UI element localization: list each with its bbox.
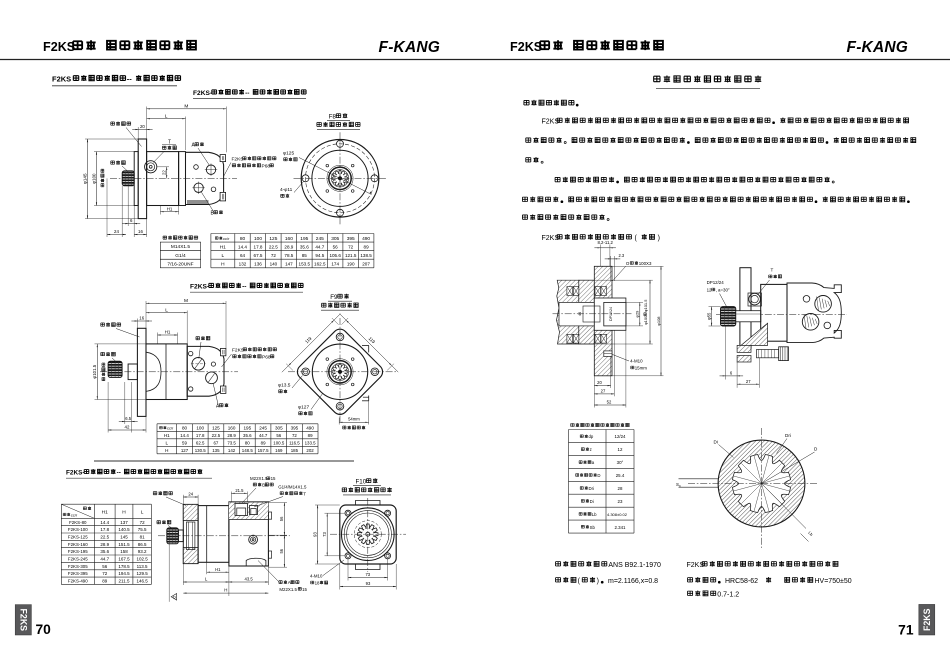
svg-text:φ100: φ100 xyxy=(643,315,648,325)
svg-text:cc/r: cc/r xyxy=(223,236,230,241)
svg-text:H: H xyxy=(165,448,168,453)
svg-text:D: D xyxy=(597,473,600,478)
svg-text:H1: H1 xyxy=(164,433,170,438)
svg-text:72: 72 xyxy=(102,571,108,576)
svg-text:dp: dp xyxy=(589,434,594,439)
svg-text:100: 100 xyxy=(254,236,262,242)
svg-text:F2KS-195: F2KS-195 xyxy=(68,549,88,554)
svg-text:M22X1.5: M22X1.5 xyxy=(279,587,297,592)
svg-text:F2KS: F2KS xyxy=(18,609,28,632)
svg-text:): ) xyxy=(597,578,599,585)
svg-text:M14X1.5: M14X1.5 xyxy=(171,244,191,250)
svg-text:F2KS: F2KS xyxy=(52,75,71,84)
svg-text:18: 18 xyxy=(315,581,320,586)
svg-text:132: 132 xyxy=(239,262,247,267)
svg-text:145: 145 xyxy=(120,534,128,539)
svg-text:100: 100 xyxy=(196,426,204,431)
svg-text:127: 127 xyxy=(181,448,189,453)
svg-text:17.8: 17.8 xyxy=(254,244,263,249)
svg-text:22.5: 22.5 xyxy=(269,244,278,249)
svg-text:H: H xyxy=(224,588,227,593)
svg-text:F2KS-395: F2KS-395 xyxy=(68,571,88,576)
svg-text:14.4: 14.4 xyxy=(238,244,247,249)
svg-text:7/16-20UNF: 7/16-20UNF xyxy=(167,261,193,267)
svg-text:190: 190 xyxy=(347,262,355,267)
svg-text:H1: H1 xyxy=(165,330,171,335)
svg-text:φ55: φ55 xyxy=(706,312,711,320)
svg-text:93: 93 xyxy=(366,581,371,586)
svg-text:F-KANG: F-KANG xyxy=(379,39,440,56)
svg-text:F2KS-: F2KS- xyxy=(190,284,209,291)
svg-text:--: -- xyxy=(117,470,121,477)
svg-text:80: 80 xyxy=(182,426,188,431)
svg-text:162.5: 162.5 xyxy=(314,262,326,267)
svg-text:Sb: Sb xyxy=(590,525,596,530)
svg-text:2.3: 2.3 xyxy=(619,253,625,258)
svg-text:395: 395 xyxy=(291,426,299,431)
svg-text:2.341: 2.341 xyxy=(615,525,627,530)
svg-text:14.4: 14.4 xyxy=(100,520,109,525)
svg-text:245: 245 xyxy=(316,236,324,242)
svg-text:16: 16 xyxy=(139,316,144,321)
svg-text:490: 490 xyxy=(306,426,314,431)
svg-text:28.9: 28.9 xyxy=(100,542,109,547)
svg-text:F2KS-100: F2KS-100 xyxy=(68,527,88,532)
svg-text:158: 158 xyxy=(120,549,128,554)
svg-text:147: 147 xyxy=(285,262,293,267)
svg-text:L: L xyxy=(221,253,224,259)
svg-text:72: 72 xyxy=(292,433,297,438)
svg-text:194.5: 194.5 xyxy=(118,571,130,576)
svg-text:16: 16 xyxy=(138,229,143,234)
svg-text:12: 12 xyxy=(618,447,623,452)
svg-text:15mm: 15mm xyxy=(635,366,648,371)
svg-text:30°: 30° xyxy=(617,460,624,465)
svg-text:56: 56 xyxy=(276,433,281,438)
svg-text:73: 73 xyxy=(322,532,327,537)
svg-text:20: 20 xyxy=(140,124,145,129)
svg-text:DP12/24: DP12/24 xyxy=(707,280,725,285)
svg-text:φ13.5: φ13.5 xyxy=(278,383,291,389)
svg-text:195: 195 xyxy=(243,426,251,431)
svg-text:73: 73 xyxy=(365,572,370,577)
svg-text:44.7: 44.7 xyxy=(259,433,268,438)
svg-text:167.5: 167.5 xyxy=(118,557,130,562)
svg-text:15: 15 xyxy=(302,587,307,592)
svg-text:Dri: Dri xyxy=(589,486,595,491)
svg-text:Lb: Lb xyxy=(592,512,597,517)
svg-text:43.5: 43.5 xyxy=(245,577,254,582)
svg-text:67.5: 67.5 xyxy=(254,253,263,258)
svg-text:148.5: 148.5 xyxy=(242,448,254,453)
svg-text:F2KS: F2KS xyxy=(43,40,75,54)
svg-text:121.5: 121.5 xyxy=(345,253,357,258)
svg-text:62.5: 62.5 xyxy=(196,440,205,445)
svg-text:72: 72 xyxy=(348,244,354,249)
svg-text:12: 12 xyxy=(707,288,712,293)
svg-text:P68: P68 xyxy=(262,355,271,361)
svg-text:F2KS: F2KS xyxy=(232,348,244,354)
svg-text:H1: H1 xyxy=(167,206,173,211)
svg-text:35.6: 35.6 xyxy=(243,433,252,438)
svg-text:G1/4: G1/4 xyxy=(175,253,186,259)
svg-text:H1: H1 xyxy=(102,509,108,515)
svg-text:100X3: 100X3 xyxy=(639,261,652,266)
svg-text:35.6: 35.6 xyxy=(300,244,309,249)
svg-text:F2KS: F2KS xyxy=(232,157,244,163)
svg-text:94.5: 94.5 xyxy=(315,253,324,258)
svg-text:ANS B92.1-1970: ANS B92.1-1970 xyxy=(608,562,661,569)
svg-text:25.4: 25.4 xyxy=(616,473,625,478)
svg-text:54mm: 54mm xyxy=(348,417,360,422)
svg-text:φ100: φ100 xyxy=(91,173,96,184)
svg-text:φ145: φ145 xyxy=(82,173,87,184)
svg-text:195: 195 xyxy=(300,236,308,242)
svg-text:160: 160 xyxy=(285,236,293,242)
svg-text:Di: Di xyxy=(714,440,718,445)
svg-text:105.6: 105.6 xyxy=(329,253,341,258)
svg-text:D: D xyxy=(173,595,176,600)
svg-text:4-φ11: 4-φ11 xyxy=(280,187,293,193)
svg-text:): ) xyxy=(658,235,660,242)
svg-text:44.7: 44.7 xyxy=(315,244,324,249)
svg-text:H1: H1 xyxy=(220,244,226,250)
svg-text:B: B xyxy=(262,483,265,488)
svg-text:H: H xyxy=(221,262,225,268)
svg-text:F2KS-245: F2KS-245 xyxy=(68,557,88,562)
svg-text:160: 160 xyxy=(228,426,236,431)
svg-text:F2KS-490: F2KS-490 xyxy=(68,579,88,584)
svg-text:17.8: 17.8 xyxy=(196,433,205,438)
svg-text:4.308±0.02: 4.308±0.02 xyxy=(607,512,628,517)
svg-text:F-KANG: F-KANG xyxy=(847,39,908,56)
svg-text:φ101.5: φ101.5 xyxy=(92,364,97,378)
svg-text:6.5: 6.5 xyxy=(125,416,131,421)
svg-text:F2KS-160: F2KS-160 xyxy=(68,542,88,547)
svg-text:140: 140 xyxy=(270,262,278,267)
svg-text:86.5: 86.5 xyxy=(138,542,147,547)
svg-text:142: 142 xyxy=(228,448,236,453)
svg-text:L: L xyxy=(165,113,168,119)
svg-text:146.5: 146.5 xyxy=(136,579,148,584)
svg-text:H1: H1 xyxy=(215,567,221,572)
svg-text:Di: Di xyxy=(590,499,594,504)
svg-text:73.5: 73.5 xyxy=(227,440,236,445)
svg-text:4-M10: 4-M10 xyxy=(630,359,643,364)
svg-text:102.5: 102.5 xyxy=(136,557,148,562)
svg-text:F2KS-125: F2KS-125 xyxy=(68,534,88,539)
svg-text:174: 174 xyxy=(331,262,339,267)
svg-text:F2KS-: F2KS- xyxy=(193,90,212,97)
svg-text:157.5: 157.5 xyxy=(258,448,270,453)
svg-text:φ125: φ125 xyxy=(283,151,294,157)
svg-text:HV=750±50: HV=750±50 xyxy=(815,578,852,585)
svg-text:59: 59 xyxy=(182,440,187,445)
svg-text:M: M xyxy=(184,298,188,304)
svg-text:F2KS-305: F2KS-305 xyxy=(68,564,88,569)
svg-text:56: 56 xyxy=(333,244,339,249)
svg-text:78.5: 78.5 xyxy=(284,253,293,258)
svg-text:72: 72 xyxy=(271,253,277,258)
svg-text:28.9: 28.9 xyxy=(284,244,293,249)
svg-text:F2KS-80: F2KS-80 xyxy=(69,520,87,525)
svg-text:178.5: 178.5 xyxy=(118,564,130,569)
svg-text:27: 27 xyxy=(601,389,606,394)
svg-text:72: 72 xyxy=(140,520,146,525)
svg-text:T: T xyxy=(771,268,774,273)
svg-text:81: 81 xyxy=(140,534,146,539)
svg-text:129.5: 129.5 xyxy=(136,571,148,576)
svg-text:138.5: 138.5 xyxy=(360,253,372,258)
svg-text:70: 70 xyxy=(36,622,52,637)
svg-text:m=2.1166,x=0.8: m=2.1166,x=0.8 xyxy=(608,578,658,585)
svg-text:116.5: 116.5 xyxy=(289,440,300,445)
svg-text:G1/4/M14X1.5: G1/4/M14X1.5 xyxy=(278,485,307,490)
svg-text:F2KS: F2KS xyxy=(922,608,932,631)
svg-text:75.5: 75.5 xyxy=(138,527,147,532)
svg-text:F8: F8 xyxy=(329,114,337,121)
svg-text:130.5: 130.5 xyxy=(195,448,207,453)
svg-text:89: 89 xyxy=(261,440,266,445)
svg-text:F9: F9 xyxy=(330,294,338,301)
svg-text:23: 23 xyxy=(618,499,623,504)
svg-text:100.5: 100.5 xyxy=(273,440,285,445)
svg-text:85: 85 xyxy=(302,253,308,258)
svg-text:67: 67 xyxy=(213,440,218,445)
svg-text:56: 56 xyxy=(102,564,108,569)
svg-text:245: 245 xyxy=(259,426,267,431)
svg-text:113.5: 113.5 xyxy=(137,564,148,569)
svg-text:151.5: 151.5 xyxy=(118,542,130,547)
svg-text:35.6: 35.6 xyxy=(100,549,109,554)
svg-text:8.2-11.2: 8.2-11.2 xyxy=(597,240,613,245)
svg-text:211.5: 211.5 xyxy=(119,579,130,584)
svg-text:φ29: φ29 xyxy=(635,310,640,318)
svg-text:27: 27 xyxy=(746,379,751,384)
svg-text:44.7: 44.7 xyxy=(100,557,109,562)
svg-text:93.2: 93.2 xyxy=(138,549,147,554)
svg-text:4-M10: 4-M10 xyxy=(310,574,323,579)
svg-text:cc/r: cc/r xyxy=(167,426,174,431)
svg-text:F2KS-: F2KS- xyxy=(66,470,84,477)
svg-text:28: 28 xyxy=(618,486,623,491)
svg-text:HRC58-62: HRC58-62 xyxy=(725,578,758,585)
svg-text:0.7-1.2: 0.7-1.2 xyxy=(717,592,739,599)
svg-text:305: 305 xyxy=(275,426,283,431)
svg-text:24: 24 xyxy=(188,492,193,497)
svg-text:22.5: 22.5 xyxy=(212,433,221,438)
svg-text:, a=30°: , a=30° xyxy=(716,288,730,293)
svg-text:z: z xyxy=(590,447,592,452)
svg-text:24: 24 xyxy=(114,229,119,234)
svg-text:137: 137 xyxy=(120,520,128,525)
svg-text:80: 80 xyxy=(240,236,246,242)
svg-text:F2KS: F2KS xyxy=(510,40,542,54)
svg-text:125: 125 xyxy=(212,426,220,431)
svg-text:P68: P68 xyxy=(262,164,271,170)
svg-text:93: 93 xyxy=(312,532,317,537)
svg-text:125: 125 xyxy=(269,236,277,242)
svg-text:--: -- xyxy=(242,284,246,291)
svg-text:--: -- xyxy=(245,90,249,97)
svg-text:135: 135 xyxy=(212,448,220,453)
svg-text:490: 490 xyxy=(362,236,370,242)
svg-text:133.5: 133.5 xyxy=(305,440,317,445)
svg-text:T: T xyxy=(303,491,306,496)
svg-text:202: 202 xyxy=(306,448,314,453)
svg-text:M22X1.5: M22X1.5 xyxy=(250,476,268,481)
svg-text:L: L xyxy=(165,307,168,313)
svg-text:28.9: 28.9 xyxy=(227,433,236,438)
svg-text:64: 64 xyxy=(240,253,246,258)
svg-text:71: 71 xyxy=(898,623,914,638)
svg-text:O: O xyxy=(626,261,630,266)
svg-text:56: 56 xyxy=(279,548,284,553)
svg-text:153.5: 153.5 xyxy=(299,262,311,267)
svg-text:22: 22 xyxy=(162,170,167,175)
svg-text:42: 42 xyxy=(125,425,130,430)
svg-text:F10: F10 xyxy=(356,479,367,486)
svg-text:185: 185 xyxy=(291,448,299,453)
svg-text:22.5: 22.5 xyxy=(100,534,109,539)
svg-text:395: 395 xyxy=(347,236,355,242)
svg-text:89: 89 xyxy=(364,244,370,249)
svg-text:21.5: 21.5 xyxy=(235,488,244,493)
svg-text:207: 207 xyxy=(362,262,370,267)
svg-text:φ127: φ127 xyxy=(298,405,309,411)
svg-text:--: -- xyxy=(127,75,132,84)
svg-text:52: 52 xyxy=(607,400,612,405)
svg-text:L: L xyxy=(141,509,144,515)
svg-text:15: 15 xyxy=(271,476,276,481)
svg-text:305: 305 xyxy=(331,236,339,242)
svg-text:136: 136 xyxy=(254,262,262,267)
svg-text:20: 20 xyxy=(597,380,602,385)
svg-text:b: b xyxy=(679,485,681,489)
svg-text:cc/r: cc/r xyxy=(71,512,78,517)
svg-text:H: H xyxy=(122,509,126,515)
svg-text:80: 80 xyxy=(245,440,250,445)
svg-text:φ101.5: φ101.5 xyxy=(643,299,648,312)
svg-text:φ108: φ108 xyxy=(656,316,661,326)
svg-text:169: 169 xyxy=(275,448,283,453)
svg-text:56: 56 xyxy=(279,516,284,521)
svg-text:89: 89 xyxy=(308,433,313,438)
svg-text:89: 89 xyxy=(102,579,108,584)
svg-text:140.5: 140.5 xyxy=(118,527,130,532)
svg-text:L: L xyxy=(166,440,169,445)
svg-text:17.8: 17.8 xyxy=(100,527,109,532)
svg-text:M: M xyxy=(184,103,188,109)
svg-text:14.4: 14.4 xyxy=(180,433,189,438)
svg-text:12/24: 12/24 xyxy=(615,434,627,439)
svg-text:Dri: Dri xyxy=(785,433,791,438)
